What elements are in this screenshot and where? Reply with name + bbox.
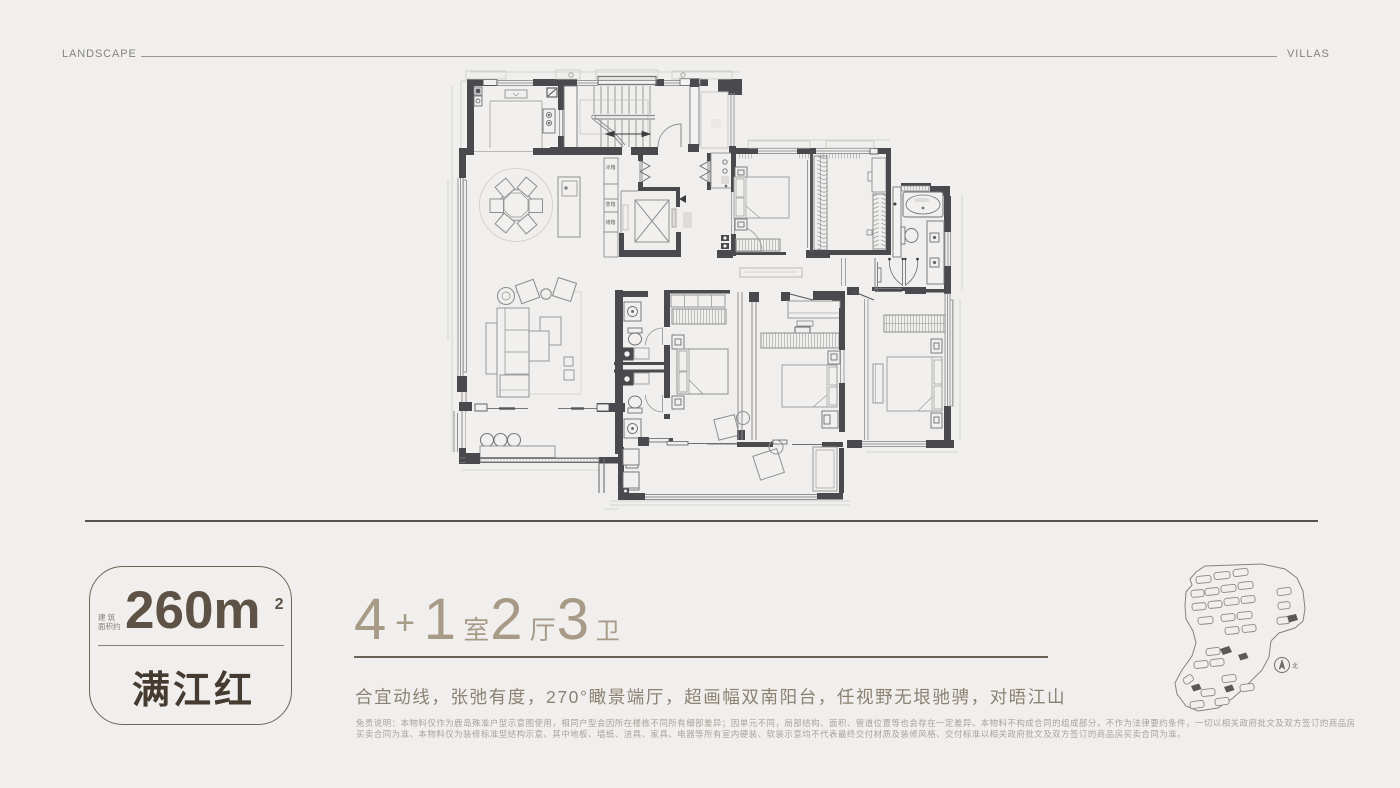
svg-text:北: 北 [1292,662,1298,670]
svg-text:蒸箱: 蒸箱 [606,201,616,208]
svg-text:烤箱: 烤箱 [606,219,616,226]
svg-text:冰箱: 冰箱 [606,164,616,171]
